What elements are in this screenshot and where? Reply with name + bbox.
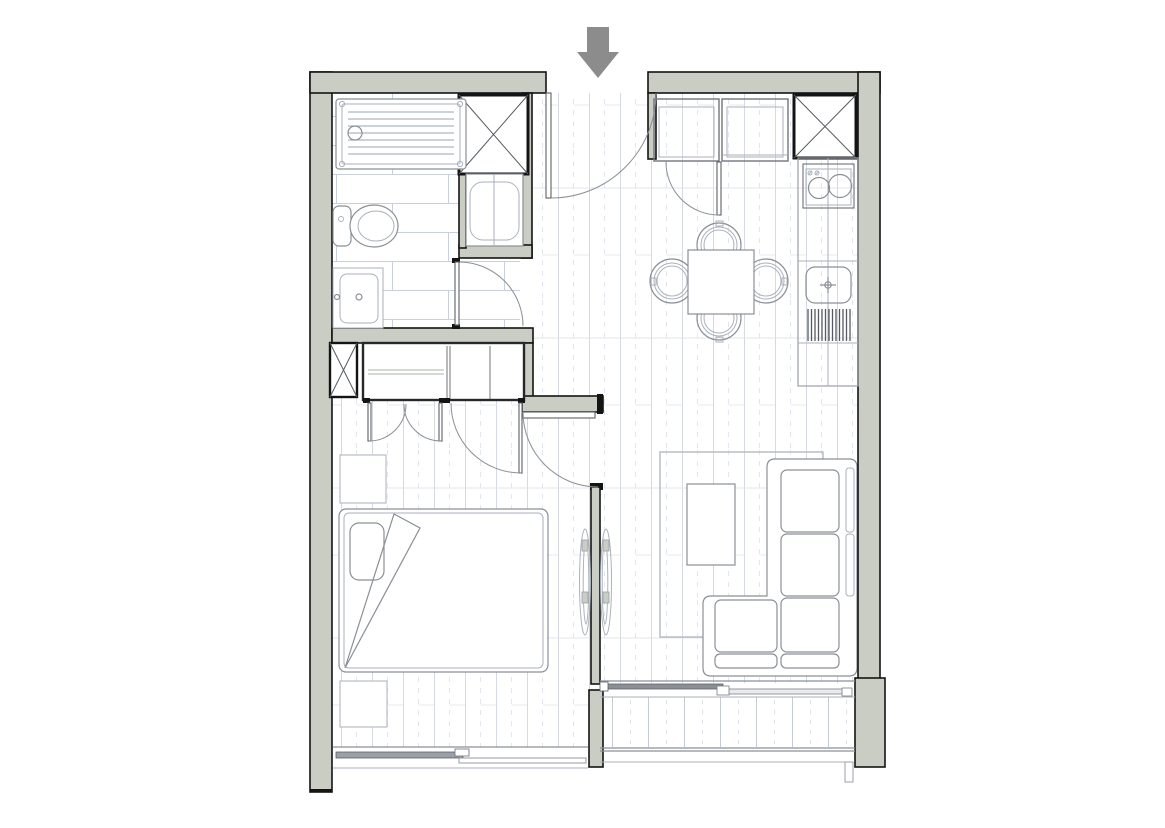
bedroom-sliding-window [333,747,588,768]
balcony-floor [602,697,855,747]
nightstand-south [340,681,387,727]
sliding-door-interlock [717,686,729,695]
entry-door-leaf [546,93,551,198]
entry-direction-arrow-icon [577,27,619,78]
sliding-door-handle [600,682,608,691]
living-sliding-door [600,681,855,697]
cabinet-door-leaf [717,162,721,215]
sliding-leaf-dark [604,684,723,689]
double-bed [339,509,548,672]
top-wall-right-segment [648,72,880,93]
service-shaft-kitchen-corner [794,95,856,158]
sliding-door-handle [842,688,852,696]
window-leaf-dark [336,752,463,758]
sliding-leaf-light [722,689,851,694]
bedroom-living-partition [591,487,600,684]
washer-niche-bottom-wall [459,245,532,258]
service-shaft-wardrobe [330,343,357,397]
washer-niche-left-wall [459,172,466,248]
window-interlock [455,749,469,756]
right-exterior-wall [858,72,880,682]
bedroom-north-wall-stub [522,396,603,412]
walk-in-shower [336,99,466,169]
floor-plan-drawing [0,0,1165,828]
washing-machine [466,174,523,246]
bathroom-door-leaf [455,262,459,325]
nightstand-north [340,455,386,503]
downpipe-post [845,762,853,782]
coffee-table [687,484,735,565]
top-wall-left-segment [310,72,546,93]
toilet [333,205,398,247]
floor-plan-canvas [0,0,1165,828]
bedroom-door-leaf [523,412,595,418]
vanity-basin [333,268,383,328]
dining-table [688,250,754,314]
window-leaf-light [459,758,586,763]
balcony-balustrade [600,748,855,782]
entry-side-jamb-wall [648,93,656,159]
service-shaft-bathroom [459,95,528,174]
left-wall-end-cap [310,789,332,792]
left-exterior-wall [310,72,332,792]
bathroom-south-wall [332,328,533,343]
balcony-right-pier [855,678,885,767]
balcony-left-post [589,690,603,767]
wall-end-cap [597,394,603,414]
